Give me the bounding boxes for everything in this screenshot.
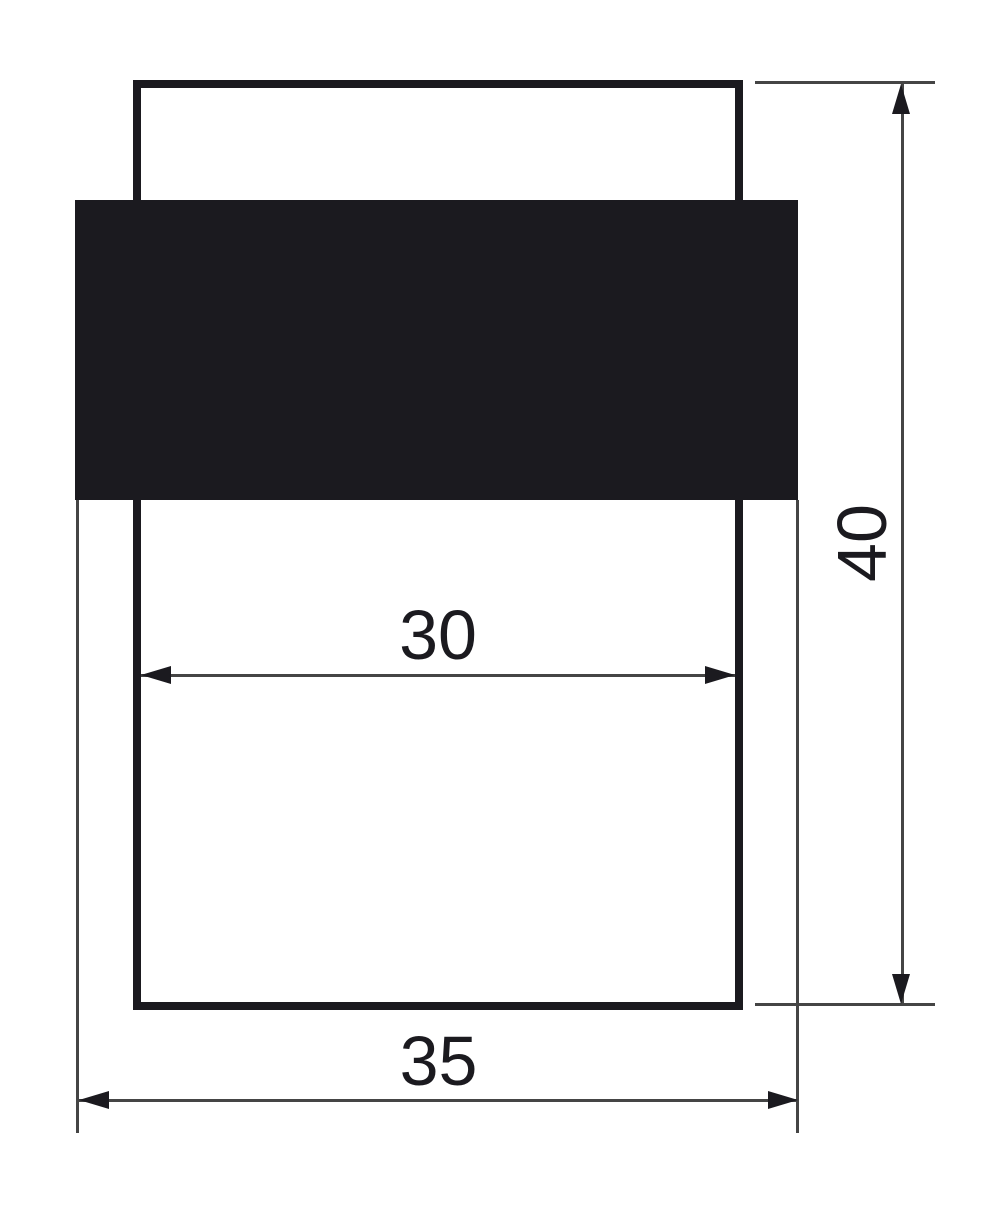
dim-30-label: 30 [141,600,735,670]
dim-40-label: 40 [827,504,897,582]
dim-40-line [901,83,904,1004]
technical-drawing: 30 35 40 [0,0,1000,1212]
dim-35-label: 35 [79,1026,798,1096]
dim-40-arrow-up-icon [892,84,910,114]
dim-40-arrow-down-icon [892,974,910,1004]
rubber-buffer-band [75,200,798,500]
dim-30-line [141,674,735,677]
